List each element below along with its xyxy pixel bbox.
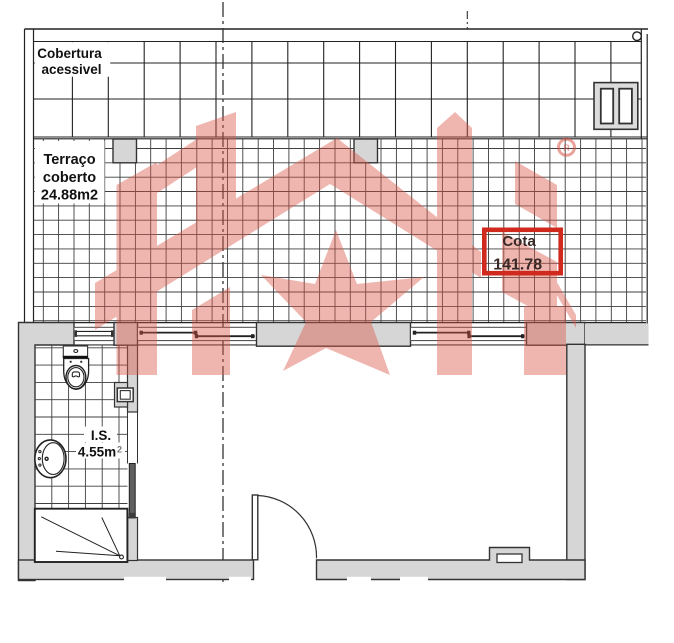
svg-text:Terraço: Terraço bbox=[43, 152, 95, 168]
svg-text:Cobertura: Cobertura bbox=[37, 46, 102, 61]
svg-text:4.55m: 4.55m bbox=[78, 445, 116, 460]
svg-text:I.S.: I.S. bbox=[91, 428, 111, 443]
svg-text:Cota: Cota bbox=[502, 233, 536, 250]
svg-text:2: 2 bbox=[117, 445, 122, 455]
svg-text:R: R bbox=[563, 143, 570, 153]
svg-text:24.88m2: 24.88m2 bbox=[41, 188, 98, 204]
svg-text:coberto: coberto bbox=[43, 170, 96, 186]
svg-text:141.78: 141.78 bbox=[493, 257, 542, 274]
svg-text:acessivel: acessivel bbox=[41, 62, 101, 77]
